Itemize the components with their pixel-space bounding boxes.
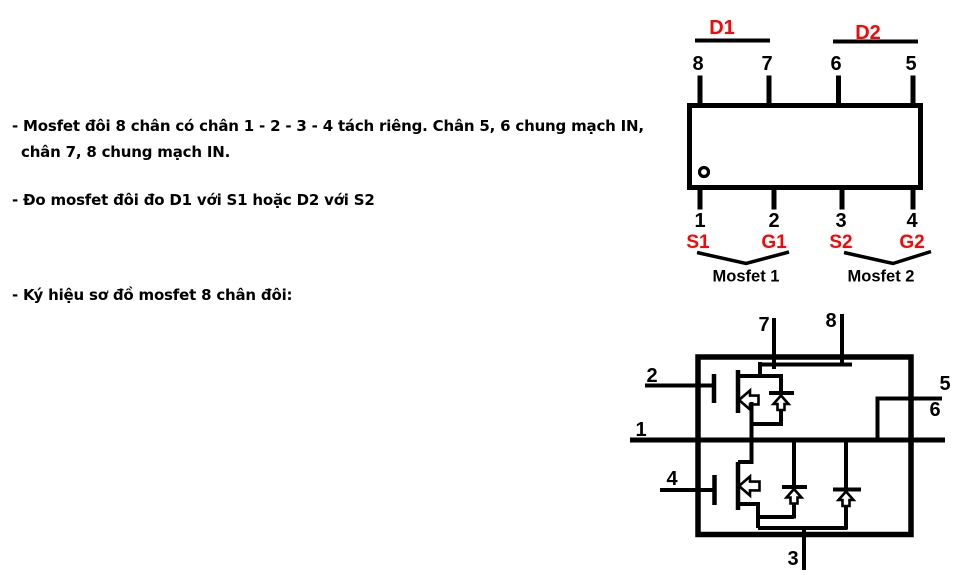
sch-pin3-number: 3 (787, 548, 798, 570)
pinout-diagram: D1 D2 8 7 6 5 1 2 3 4 (686, 17, 931, 286)
pkg-pin7-number: 7 (761, 53, 772, 75)
page: - Mosfet đôi 8 chân có chân 1 - 2 - 3 - … (0, 0, 969, 575)
label-g2: G2 (899, 232, 924, 253)
sch-pin5-number: 5 (939, 373, 950, 395)
label-g1: G1 (761, 232, 787, 253)
sch-pin8-number: 8 (825, 310, 836, 332)
m1-body-diode-arrow-icon (774, 396, 789, 411)
pkg-pin5-number: 5 (905, 53, 916, 75)
sch-pin7-number: 7 (758, 314, 769, 336)
mosfet1-bracket (697, 252, 789, 264)
pin1-indicator-dot (700, 168, 709, 177)
pkg-pin6-number: 6 (830, 53, 841, 75)
pkg-pin4-number: 4 (906, 210, 918, 232)
pkg-pin3-number: 3 (835, 210, 846, 232)
label-mosfet2: Mosfet 2 (848, 268, 915, 286)
pkg-pin1-number: 1 (694, 210, 705, 232)
m2-diode1-arrow-icon (787, 489, 802, 504)
sch-pin4-number: 4 (666, 468, 678, 490)
m1-source-arrow-icon (739, 391, 759, 410)
m2-source-arrow-icon (739, 477, 760, 496)
schematic-box (698, 357, 911, 535)
label-s1: S1 (686, 232, 710, 253)
mosfet2-bracket (844, 252, 931, 264)
m2-diode2-arrow-icon (839, 492, 854, 507)
label-d1: D1 (709, 17, 735, 39)
schematic-diagram: 7 8 2 5 6 1 (630, 310, 951, 570)
pkg-pin2-number: 2 (768, 210, 779, 232)
pkg-pin8-number: 8 (692, 53, 703, 75)
sch-pin6-number: 6 (929, 399, 940, 421)
package-body (690, 106, 921, 188)
label-mosfet1: Mosfet 1 (713, 268, 780, 286)
drawing-layer: D1 D2 8 7 6 5 1 2 3 4 (0, 0, 969, 575)
label-s2: S2 (829, 232, 852, 253)
